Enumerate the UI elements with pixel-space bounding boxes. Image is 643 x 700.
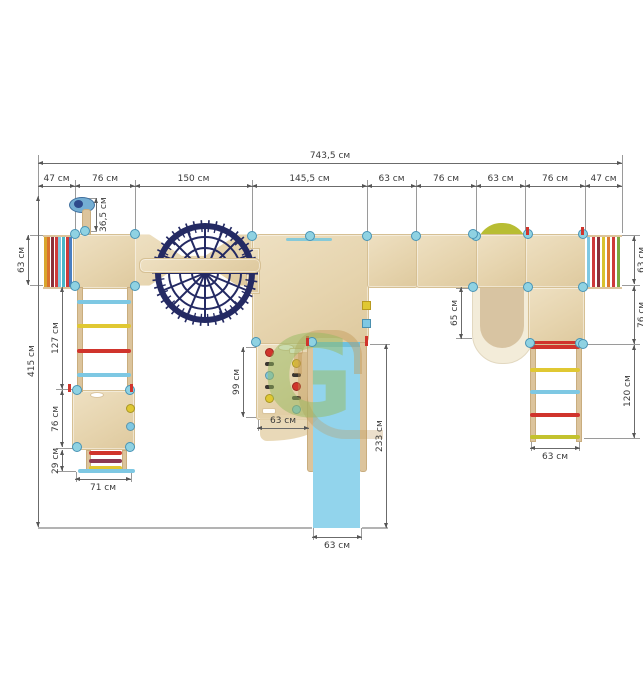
dimension-label: 63 см: [17, 235, 27, 285]
total-width-dimension: 743,5 см: [38, 163, 622, 164]
steps-base-bar: [78, 469, 135, 473]
left-bridge-dimension: 63 см: [28, 235, 29, 285]
dimension-label: 63 см: [530, 452, 580, 462]
dimension-label: 47 см: [38, 174, 75, 184]
right-bridge-dimension: 63 см: [634, 236, 635, 284]
dimension-label: 63 см: [476, 174, 525, 184]
ladder-rung: [530, 390, 580, 394]
dimension-label: 76 см: [637, 286, 643, 344]
extension-line: [525, 180, 526, 234]
hold-yellow: [126, 404, 135, 413]
dimension-row-segment: 76 см: [416, 186, 476, 187]
dimension-label: 29 см: [51, 450, 61, 471]
slide-length-dimension: 233 см: [386, 344, 387, 528]
dimension-label: 120 см: [623, 345, 633, 438]
fastener-tick: [526, 227, 529, 235]
ladder-rung: [530, 345, 580, 349]
dimension-label: 63 см: [257, 416, 309, 426]
left-ladder-dimension: 127 см: [62, 287, 63, 389]
bridge-rung: [51, 237, 54, 287]
connector-dot: [251, 337, 261, 347]
walkway-panel: [367, 234, 418, 288]
left-ladder: [77, 287, 131, 390]
hand-slot: [90, 392, 104, 398]
dimension-label: 127 см: [51, 287, 61, 389]
overall-depth-dimension: 415 см: [38, 196, 39, 527]
right-ladder: [530, 344, 580, 440]
left-deck-panel: [73, 234, 137, 289]
bridge-rung: [55, 237, 58, 287]
connector-dot: [523, 282, 533, 292]
bridge-rung: [44, 237, 47, 287]
fastener-tick: [365, 338, 368, 346]
climbing-wall-width-dimension: 63 см: [257, 428, 309, 429]
connector-dot: [80, 226, 90, 236]
hold-square-yellow: [362, 301, 371, 310]
connector-dot: [411, 231, 421, 241]
dimension-row-segment: 76 см: [525, 186, 585, 187]
extension-line: [131, 472, 132, 482]
dimension-label: 65 см: [450, 287, 460, 339]
hold-blue: [126, 422, 135, 431]
dimension-label: 76 см: [416, 174, 476, 184]
bridge-rung: [592, 237, 595, 287]
connector-dot: [578, 282, 588, 292]
bridge-rung: [69, 237, 72, 287]
tunnel-dimension: 65 см: [461, 287, 462, 339]
extension-line: [416, 180, 417, 234]
right-rope-bridge: [585, 235, 622, 289]
connector-dot: [72, 385, 82, 395]
connector-dot: [70, 281, 80, 291]
ladder-rung: [530, 368, 580, 372]
connector-dot: [247, 231, 257, 241]
ladder-rung: [89, 451, 122, 455]
dimension-label: 99 см: [232, 347, 242, 417]
connector-dot: [468, 282, 478, 292]
bridge-rung: [62, 237, 65, 287]
dimension-label: 47 см: [585, 174, 622, 184]
tunnel-top-panel: [476, 234, 527, 288]
ladder-rung: [89, 459, 122, 463]
ladder-rung: [77, 300, 131, 304]
steering-wheel-hub: [74, 200, 83, 208]
dimension-label: 233 см: [375, 344, 385, 528]
dimension-label: 63 см: [367, 174, 416, 184]
bridge-rung: [612, 237, 615, 287]
bridge-rung: [602, 237, 605, 287]
connector-dot: [72, 442, 82, 452]
tunnel-arch-inner: [480, 286, 524, 348]
left-steps-width-dimension: 71 см: [75, 479, 131, 480]
fastener-tick: [306, 338, 309, 346]
connector-dot: [362, 231, 372, 241]
dimension-row-segment: 150 см: [135, 186, 252, 187]
ladder-rung: [530, 413, 580, 417]
dimension-label: 145,5 см: [252, 174, 367, 184]
ground-line: [38, 527, 312, 529]
extension-line: [622, 155, 623, 233]
slide-width-dimension: 63 см: [312, 537, 362, 538]
fastener-tick: [581, 227, 584, 235]
right-ladder-width-dimension: 63 см: [530, 448, 580, 449]
left-steps-dimension: 29 см: [62, 450, 63, 471]
left-rope-bridge: [43, 235, 73, 289]
fastener-tick: [130, 384, 133, 392]
connector-dot: [578, 339, 588, 349]
dimension-label: 36,5 см: [99, 198, 109, 231]
walkway-panel: [525, 234, 587, 288]
dimension-label: 76 см: [525, 174, 585, 184]
hold-square-blue: [362, 319, 371, 328]
spider-net: [151, 219, 259, 327]
left-steps: [89, 451, 122, 470]
fastener-tick: [68, 384, 71, 392]
dimension-label: 71 см: [75, 483, 131, 493]
bridge-rung: [607, 237, 610, 287]
extension-line: [584, 438, 640, 439]
dimension-row-segment: 63 см: [476, 186, 525, 187]
bridge-rung: [47, 237, 50, 287]
ladder-rung: [77, 349, 131, 353]
bridge-rung: [617, 237, 620, 287]
dimension-row-segment: 76 см: [75, 186, 135, 187]
right-platform-dimension: 76 см: [634, 286, 635, 344]
dimension-row-segment: 47 см: [585, 186, 622, 187]
ladder-rung: [77, 324, 131, 328]
extension-line: [367, 180, 368, 234]
connector-dot: [468, 229, 478, 239]
dimension-label: 76 см: [51, 390, 61, 447]
left-platform-dimension: 76 см: [62, 390, 63, 447]
ladder-rung: [530, 435, 580, 439]
right-platform: [528, 287, 585, 345]
extension-line: [476, 180, 477, 234]
bridge-rung: [587, 237, 590, 287]
playground-blueprint: G 743,5 см 47 см 76 см 150 см 145,5 см 6…: [0, 0, 643, 700]
connector-dot: [525, 338, 535, 348]
ladder-rung: [77, 373, 131, 377]
walkway-panel: [416, 234, 478, 288]
climbing-wall-dimension: 99 см: [243, 347, 244, 417]
net-crossbeam: [139, 258, 261, 273]
dimension-label: 63 см: [637, 236, 643, 284]
dimension-label: 76 см: [75, 174, 135, 184]
dimension-label: 743,5 см: [38, 151, 622, 161]
connector-dot: [305, 231, 315, 241]
bridge-rung: [66, 237, 69, 287]
bridge-rung: [58, 237, 61, 287]
connector-dot: [130, 229, 140, 239]
left-platform: [72, 390, 135, 450]
right-ladder-dimension: 120 см: [634, 345, 635, 438]
connector-dot: [70, 229, 80, 239]
mast-dimension: 36,5 см: [96, 198, 97, 231]
dimension-label: 150 см: [135, 174, 252, 184]
bridge-rung: [597, 237, 600, 287]
dimension-row-segment: 145,5 см: [252, 186, 367, 187]
dimension-row-segment: 63 см: [367, 186, 416, 187]
connector-dot: [125, 442, 135, 452]
dimension-row-segment: 47 см: [38, 186, 75, 187]
connector-dot: [130, 281, 140, 291]
dimension-label: 63 см: [312, 541, 362, 551]
